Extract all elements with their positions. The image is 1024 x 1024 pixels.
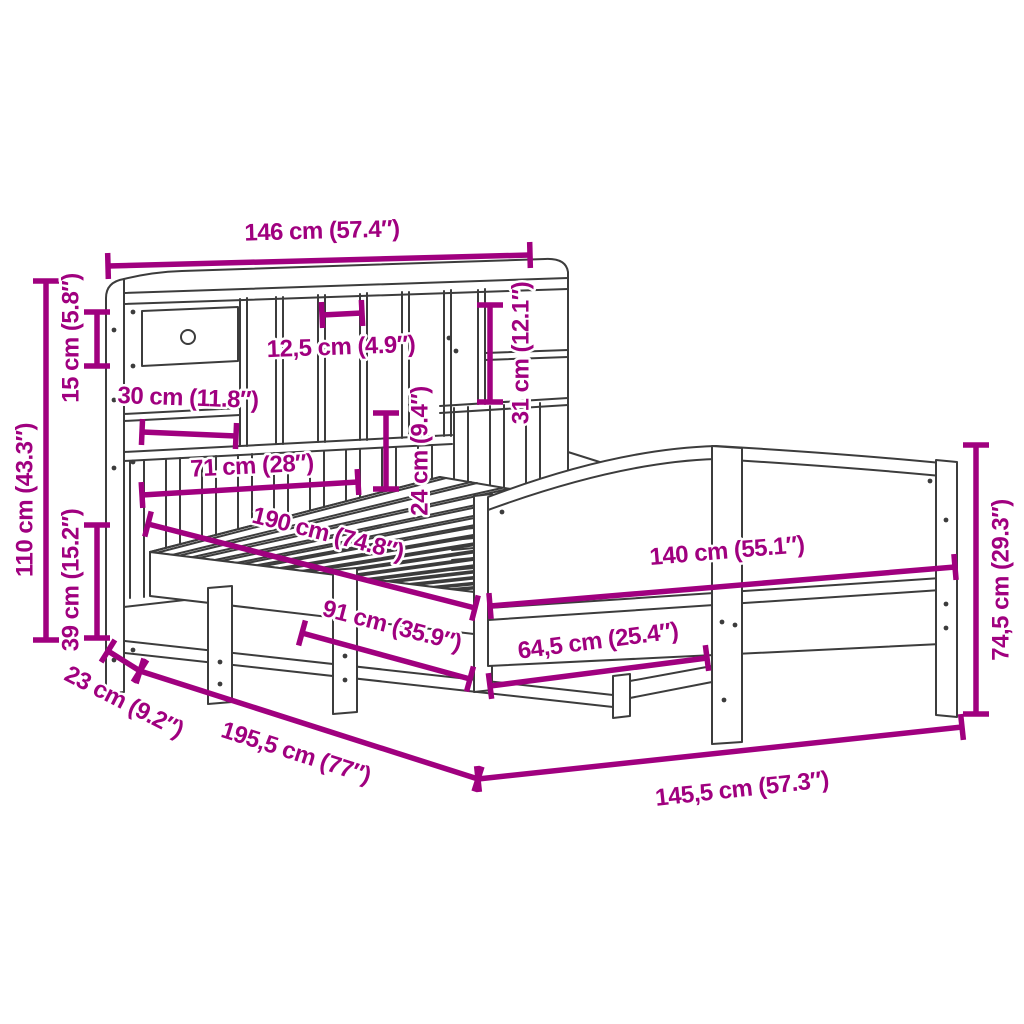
dimension-label-drawer-width: 30 cm (11.8″) [117,382,259,414]
dimension-tick-end [361,300,362,326]
dimension-line [322,313,362,315]
dimension-label-top-shelf-height: 15 cm (5.8″) [58,273,85,403]
dimension-total-length: 195,5 cm (77″) [136,659,482,792]
dimension-label-shelf-gap-height: 24 cm (9.4″) [407,386,434,516]
dimension-tick-end [235,423,236,449]
dimension-tick-end [530,242,531,268]
center-support-leg [613,674,630,718]
dimension-lower-section-height: 39 cm (15.2″) [58,509,111,651]
bed-dimension-diagram: 146 cm (57.4″)110 cm (43.3″)15 cm (5.8″)… [0,0,1024,1024]
footboard-right-post [936,460,957,717]
dimension-label-footboard-height: 74,5 cm (29.3″) [988,499,1015,660]
dimension-tick-start [299,620,306,645]
dimension-tick-start [489,593,491,619]
dimension-tick-end [705,645,708,671]
dimension-label-headboard-width: 146 cm (57.4″) [244,215,400,246]
footboard-front-post [712,446,742,744]
dimension-tick-start [141,482,143,508]
dimension-tick-start [141,419,142,445]
headboard-side-panel [106,279,124,694]
dimension-label-cubby-height: 31 cm (12.1″) [508,282,535,424]
dimension-label-cubby-width: 12,5 cm (4.9″) [266,331,415,363]
dimension-tick-start [488,673,491,699]
dimension-tick-start [477,766,480,792]
dimension-tick-end [467,666,474,691]
dimension-label-total-length: 195,5 cm (77″) [218,717,374,790]
dimension-tick-start [108,253,109,279]
dimension-diagram-canvas: 146 cm (57.4″)110 cm (43.3″)15 cm (5.8″)… [0,0,1024,1024]
dimension-tick-end [357,469,359,495]
dimension-label-total-width: 145,5 cm (57.3″) [654,766,830,812]
dimension-tick-start [321,302,322,328]
dimension-label-lower-section-height: 39 cm (15.2″) [58,509,85,651]
dimension-footboard-height: 74,5 cm (29.3″) [963,445,1015,714]
dimension-label-headboard-height: 110 cm (43.3″) [12,423,39,577]
dimension-tick-start [136,659,144,684]
dimension-headboard-height: 110 cm (43.3″) [12,281,60,640]
dimension-tick-end [961,714,964,740]
diagonal-braces [630,666,712,698]
dimension-tick-end [954,554,956,580]
headboard-drawer [142,307,238,366]
dimension-top-shelf-height: 15 cm (5.8″) [58,273,111,403]
